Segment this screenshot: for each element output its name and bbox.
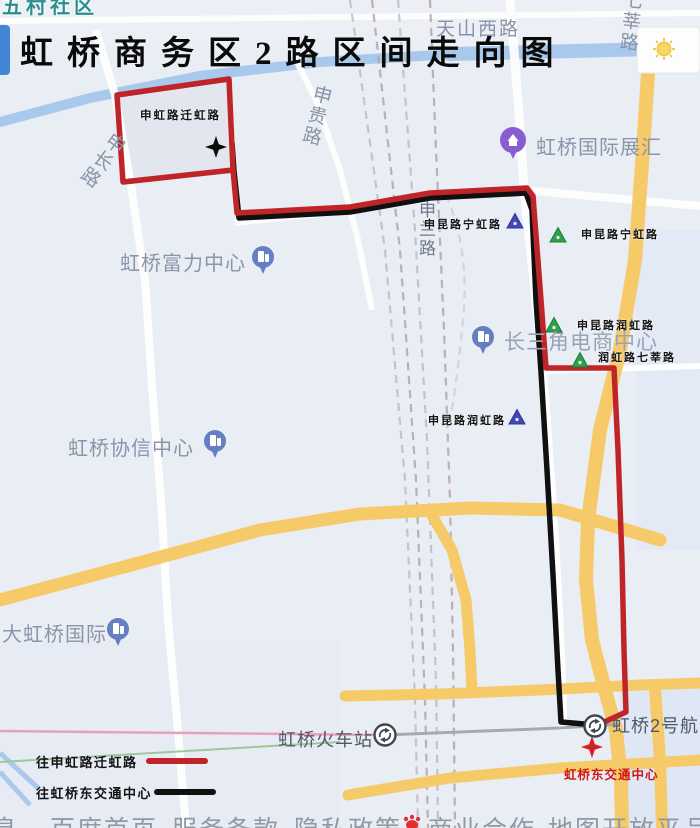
weather-widget[interactable] xyxy=(637,27,700,73)
footer-link-business[interactable]: 商业合作 xyxy=(428,810,536,828)
stop-marker-green-ninghong xyxy=(550,228,566,243)
left-edge-blue-bar xyxy=(0,25,10,75)
stop-marker-blue-runhong xyxy=(509,410,525,425)
railway-station-metro-icon[interactable] xyxy=(375,725,396,746)
basemap-svg xyxy=(0,0,700,828)
legend-red-swatch xyxy=(146,758,208,764)
route-map-canvas: 五村社区 虹桥商务区2路区间走向图 天山西路 七莘路 申贵路 申长路 申兰路 申… xyxy=(0,0,700,828)
footer-link-terms[interactable]: 服务条款 xyxy=(172,810,280,828)
footer-link-baidu-home[interactable]: 百度首页 xyxy=(50,810,158,828)
railway-tracks xyxy=(350,0,465,828)
stop-marker-green-qixin xyxy=(572,353,588,368)
footer-link-privacy[interactable]: 隐私政策 xyxy=(294,810,402,828)
stop-marker-green-runhong xyxy=(546,318,562,333)
xiexin-pin-icon[interactable] xyxy=(204,430,226,458)
footer-link-partial[interactable]: 息 xyxy=(0,810,19,828)
footer-link-brand[interactable]: 品牌(商 xyxy=(684,810,700,828)
ecommerce-pin-icon[interactable] xyxy=(472,326,494,354)
legend-black-swatch xyxy=(154,789,216,795)
fuli-pin-icon[interactable] xyxy=(252,246,274,274)
stop-marker-blue-ninghong xyxy=(507,214,523,229)
footer-link-open-platform[interactable]: 地图开放平台 xyxy=(548,810,700,828)
baidu-paw-icon xyxy=(404,815,420,828)
terminal2-metro-icon[interactable] xyxy=(585,716,606,737)
end-terminal-star xyxy=(581,736,603,758)
map-block xyxy=(636,230,700,550)
